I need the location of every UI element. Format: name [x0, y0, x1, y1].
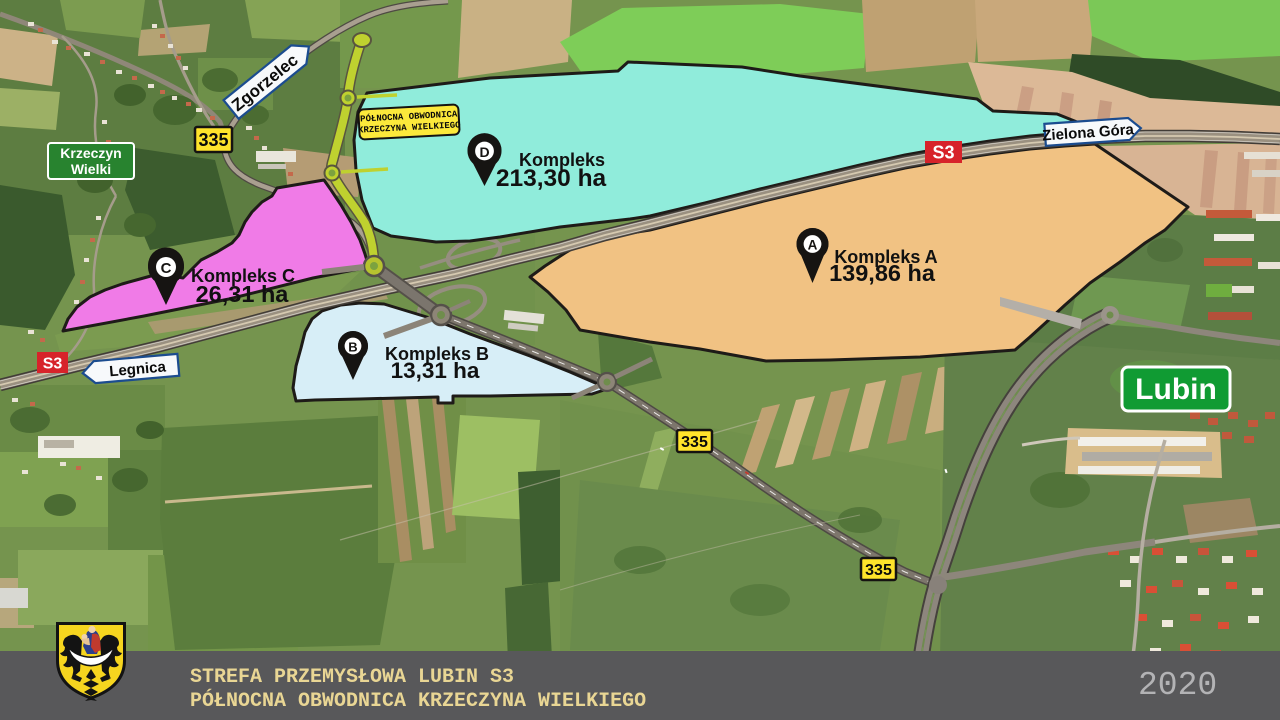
svg-text:2020: 2020 — [1138, 667, 1217, 704]
svg-text:26,31 ha: 26,31 ha — [196, 281, 290, 307]
svg-text:D: D — [479, 144, 489, 160]
svg-text:Krzeczyn: Krzeczyn — [60, 145, 121, 161]
svg-text:C: C — [161, 260, 172, 277]
svg-text:S3: S3 — [43, 356, 63, 373]
svg-text:335: 335 — [198, 130, 228, 150]
svg-text:335: 335 — [681, 434, 708, 451]
svg-text:S3: S3 — [932, 143, 954, 163]
svg-text:139,86 ha: 139,86 ha — [829, 260, 936, 286]
svg-text:B: B — [348, 340, 357, 355]
svg-text:213,30 ha: 213,30 ha — [496, 165, 607, 192]
svg-text:STREFA PRZEMYSŁOWA LUBIN S3: STREFA PRZEMYSŁOWA LUBIN S3 — [190, 666, 514, 689]
svg-text:335: 335 — [865, 562, 892, 579]
svg-text:A: A — [808, 238, 818, 253]
svg-text:PÓŁNOCNA OBWODNICA KRZECZYNA: PÓŁNOCNA OBWODNICA KRZECZYNA WIELKIEGO — [190, 689, 646, 713]
svg-text:Wielki: Wielki — [71, 161, 111, 177]
svg-text:Lubin: Lubin — [1135, 373, 1217, 406]
svg-text:13,31 ha: 13,31 ha — [391, 358, 480, 383]
